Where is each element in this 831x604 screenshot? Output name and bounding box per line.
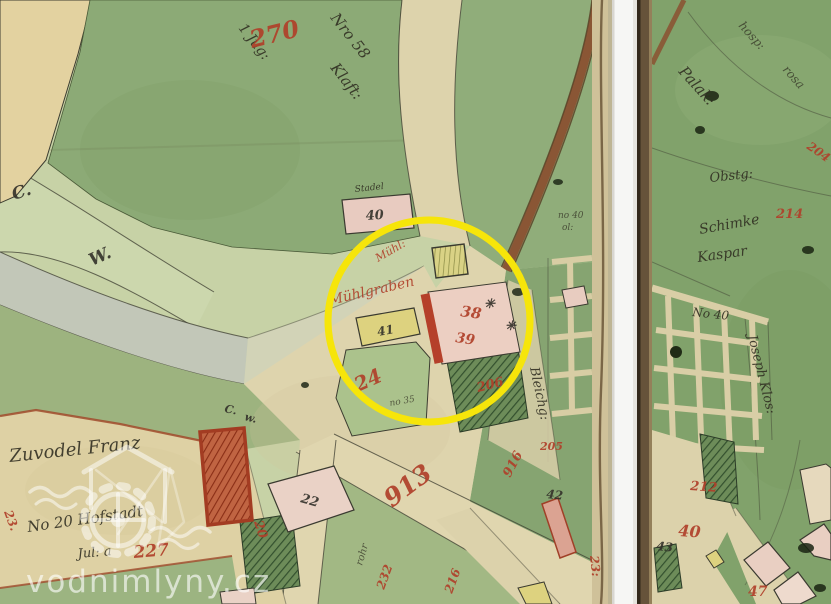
tree-blob <box>670 346 682 358</box>
parcel-number-212: 212 <box>689 479 718 496</box>
parcel-number-47: 47 <box>748 584 768 600</box>
map-sheet-right: Palak: hosp: rosa 204 Obstg: Schimke Kas… <box>637 0 831 604</box>
building-number-40: 40 <box>365 208 384 224</box>
strip-script: ol: <box>562 223 573 233</box>
building-hatched-square <box>432 244 468 278</box>
watermark-site-text: vodnimlyny.cz <box>26 564 271 600</box>
building-number-42: 42 <box>546 487 564 503</box>
gap-shadow-left <box>612 0 615 604</box>
sheet-edge-right <box>637 0 653 604</box>
edge-number-23: 23: <box>587 554 603 577</box>
building-number-38: 38 <box>459 302 483 323</box>
parcel-number-214: 214 <box>775 207 803 222</box>
parcel-number-40: 40 <box>678 521 702 542</box>
parcel-number-205: 205 <box>539 440 563 453</box>
parcel-number-43: 43 <box>656 539 674 555</box>
map-viewport: 1 Jug: Nro 58 Klaft: 270 C. W. Stadel 40… <box>0 0 831 604</box>
building-pink-strip <box>562 286 588 308</box>
star-mark: ✳ <box>505 319 517 334</box>
building-number-39: 39 <box>454 330 476 349</box>
building-red-hatched <box>200 428 252 525</box>
star-mark: ✳ <box>484 297 496 312</box>
gap-shadow-right <box>633 0 637 604</box>
strip-script: no 40 <box>558 211 584 221</box>
building-number-41: 41 <box>376 322 395 339</box>
cadastral-map: 1 Jug: Nro 58 Klaft: 270 C. W. Stadel 40… <box>0 0 831 604</box>
